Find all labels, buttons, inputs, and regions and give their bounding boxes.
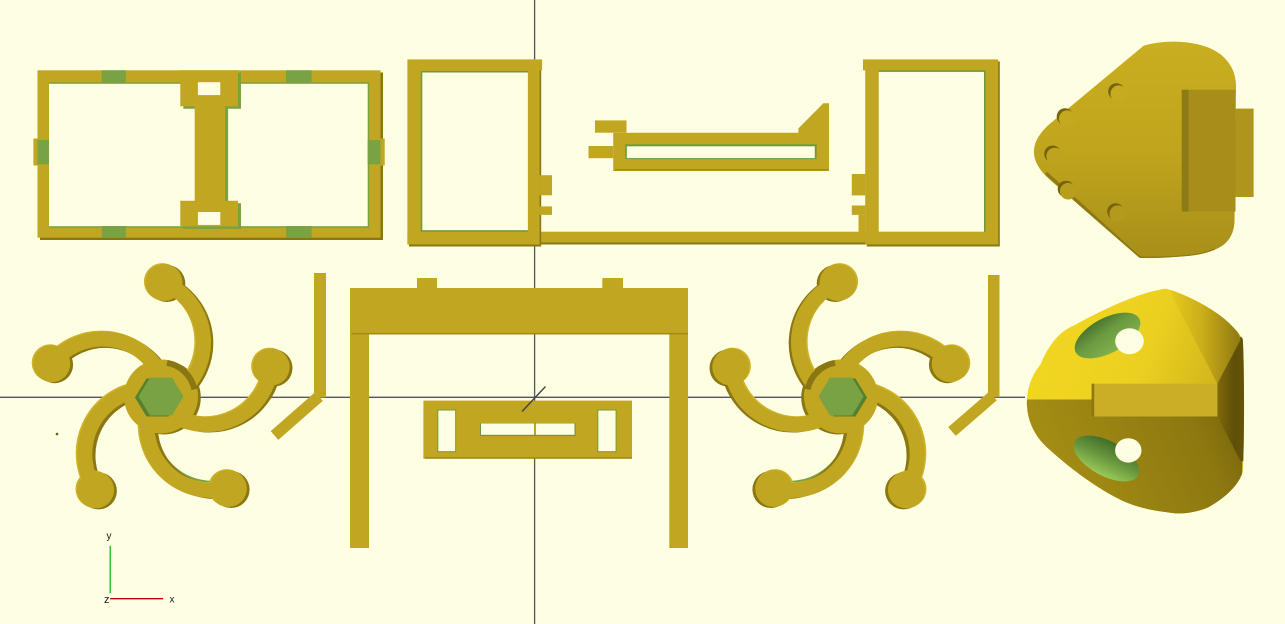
svg-text:y: y xyxy=(107,531,112,542)
svg-text:z: z xyxy=(104,594,110,606)
svg-text:x: x xyxy=(170,595,175,606)
